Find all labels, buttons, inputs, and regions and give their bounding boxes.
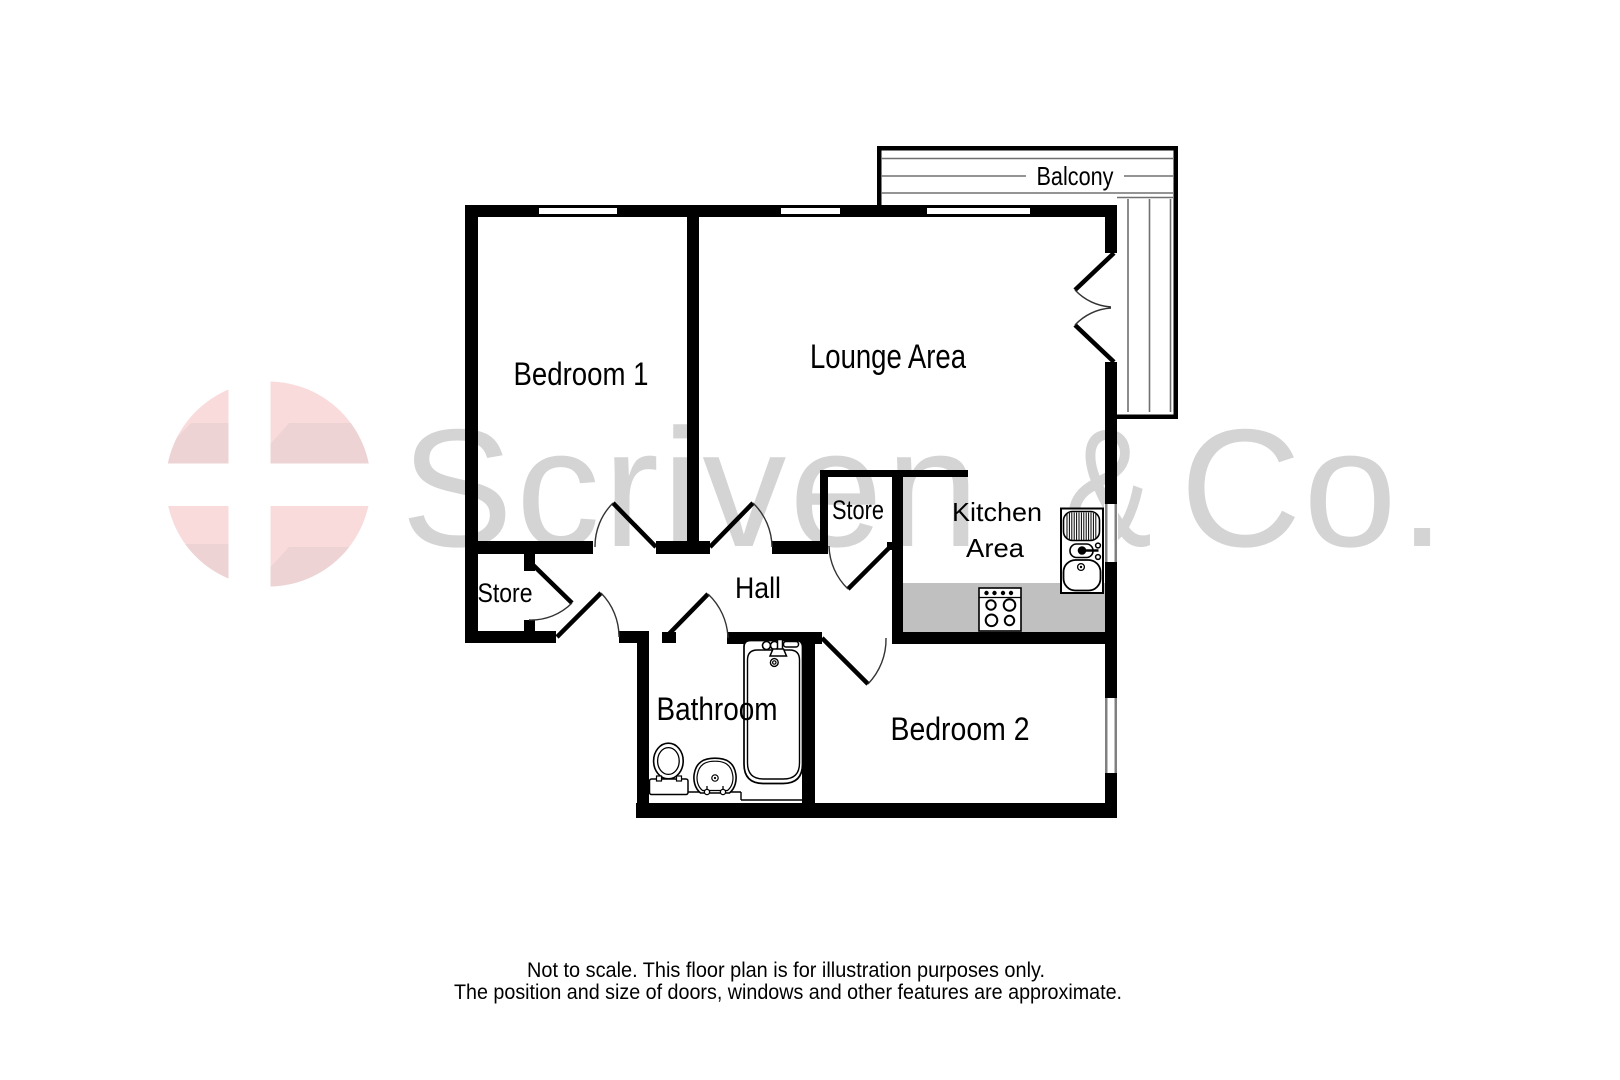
svg-text:Bedroom 2: Bedroom 2 bbox=[891, 711, 1030, 747]
svg-text:Store: Store bbox=[832, 495, 884, 525]
svg-text:Bedroom 1: Bedroom 1 bbox=[514, 356, 649, 392]
svg-text:Store: Store bbox=[478, 578, 533, 608]
svg-text:Lounge Area: Lounge Area bbox=[810, 338, 966, 376]
svg-text:Hall: Hall bbox=[735, 572, 781, 605]
svg-text:Not to scale. This floor plan: Not to scale. This floor plan is for ill… bbox=[527, 959, 1045, 982]
svg-text:Area: Area bbox=[966, 533, 1025, 563]
svg-text:Co.: Co. bbox=[1180, 394, 1447, 582]
svg-text:Kitchen: Kitchen bbox=[952, 497, 1042, 527]
svg-text:The position and size of doors: The position and size of doors, windows … bbox=[454, 981, 1122, 1004]
svg-text:Bathroom: Bathroom bbox=[657, 691, 778, 727]
svg-text:Balcony: Balcony bbox=[1037, 161, 1114, 191]
